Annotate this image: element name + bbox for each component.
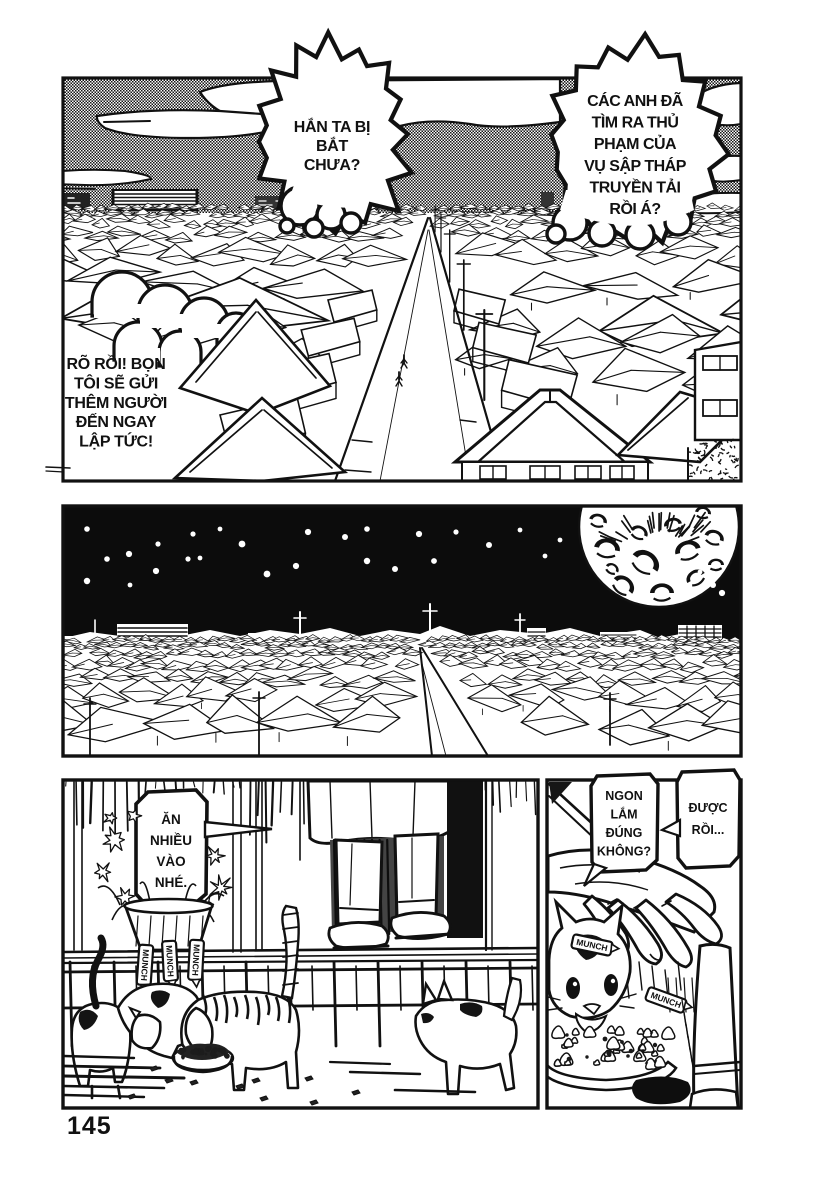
svg-text:RÕ RỒI! BỌN: RÕ RỒI! BỌN [67,353,166,373]
svg-text:MUNCH: MUNCH [190,944,202,976]
svg-text:RỒI...: RỒI... [692,822,725,837]
svg-text:TÌM RA THỦ: TÌM RA THỦ [592,113,679,132]
svg-text:BẮT: BẮT [316,136,349,155]
svg-text:CÁC ANH ĐÃ: CÁC ANH ĐÃ [587,90,684,110]
svg-text:HẮN TA BỊ: HẮN TA BỊ [294,117,370,136]
svg-text:PHẠM CỦA: PHẠM CỦA [594,134,677,153]
svg-text:VỤ SẬP THÁP: VỤ SẬP THÁP [584,156,687,175]
svg-text:CHƯA?: CHƯA? [304,157,360,174]
svg-text:RỒI Á?: RỒI Á? [609,199,660,218]
svg-text:ĐÚNG: ĐÚNG [606,825,643,840]
svg-text:NGON: NGON [605,789,643,803]
svg-text:TRUYỀN TẢI: TRUYỀN TẢI [590,177,681,196]
svg-text:LẬP TỨC!: LẬP TỨC! [79,432,153,451]
svg-text:TÔI SẼ GỬI: TÔI SẼ GỬI [74,372,158,392]
svg-text:VÀO: VÀO [156,854,185,869]
svg-text:ĐƯỢC: ĐƯỢC [688,801,727,815]
svg-text:ĂN: ĂN [161,812,181,827]
svg-text:ĐẾN NGAY: ĐẾN NGAY [76,412,157,431]
svg-text:NHÉ.: NHÉ. [155,875,187,890]
svg-text:MUNCH: MUNCH [164,945,176,977]
svg-text:145: 145 [67,1112,112,1140]
svg-text:KHÔNG?: KHÔNG? [597,844,651,859]
svg-text:THÊM NGƯỜI: THÊM NGƯỜI [65,393,167,412]
svg-text:LẮM: LẮM [610,807,637,822]
svg-text:NHIỀU: NHIỀU [150,833,192,848]
